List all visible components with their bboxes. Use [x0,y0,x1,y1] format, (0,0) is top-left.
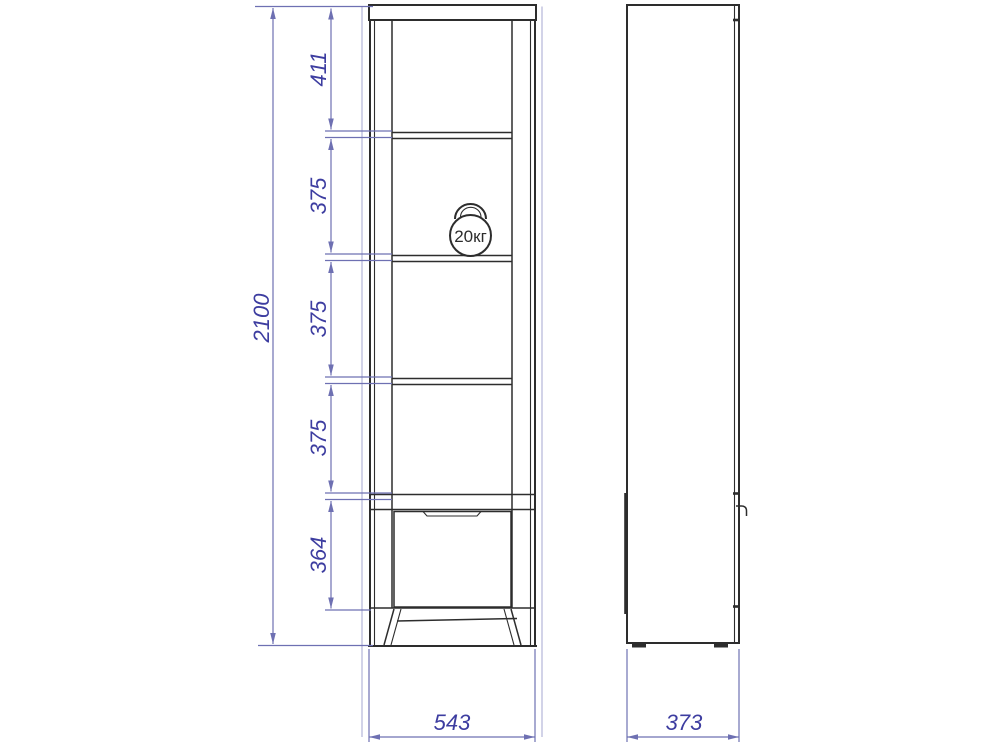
side-drawer-handle-profile [736,506,747,516]
dimension-annotations: 2100 411 375 375 375 364 543 373 [249,7,739,743]
dim-section-2-label: 375 [306,177,331,214]
dim-section-3-label: 375 [306,300,331,337]
plinth-stretcher [397,619,517,622]
plinth [368,608,537,646]
drawer-front [394,512,511,608]
front-left-side-panel [370,20,392,646]
bottom-shelf-band [369,495,536,510]
side-right-foot [714,643,728,648]
shelf-lines [392,133,512,385]
front-top-panel [369,5,536,20]
front-right-side-panel [512,20,535,646]
dim-width-label: 543 [434,710,471,735]
cabinet-drawing: 20кг [0,0,1000,750]
shelf-load-label: 20кг [454,227,487,246]
technical-drawing-canvas: 20кг [0,0,1000,750]
extension-lines [255,7,739,743]
side-left-foot [632,643,646,648]
front-view: 20кг [368,5,537,646]
side-view [626,5,747,648]
dim-section-1-label: 411 [306,51,331,86]
dim-depth-label: 373 [666,710,703,735]
dim-section-4-label: 375 [306,419,331,456]
dim-total-height-label: 2100 [249,293,274,344]
dim-section-5-label: 364 [306,537,331,574]
dimension-lines [273,8,739,737]
kettlebell-20kg-icon: 20кг [450,204,491,256]
side-body [627,5,739,643]
